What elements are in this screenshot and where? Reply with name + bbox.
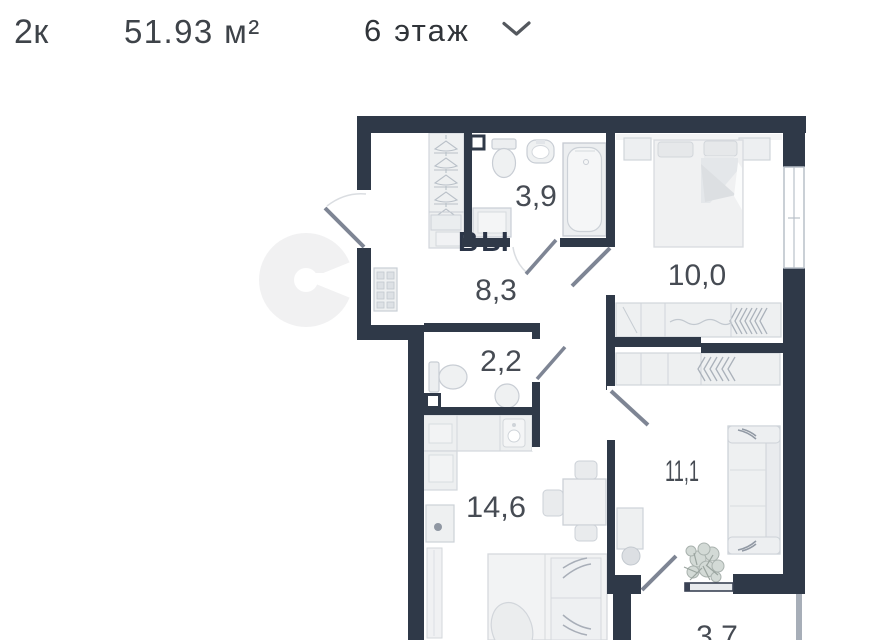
svg-text:14,6: 14,6 [466, 491, 526, 524]
svg-text:3,7: 3,7 [696, 620, 738, 640]
svg-text:6 этаж: 6 этаж [364, 13, 470, 48]
svg-text:51.93 м²: 51.93 м² [124, 13, 261, 50]
svg-text:2,2: 2,2 [480, 345, 522, 378]
svg-text:3,9: 3,9 [515, 180, 557, 213]
svg-text:2к: 2к [14, 13, 49, 51]
svg-text:11,1: 11,1 [665, 455, 699, 488]
svg-text:8,3: 8,3 [475, 274, 517, 307]
svg-text:10,0: 10,0 [668, 259, 726, 292]
